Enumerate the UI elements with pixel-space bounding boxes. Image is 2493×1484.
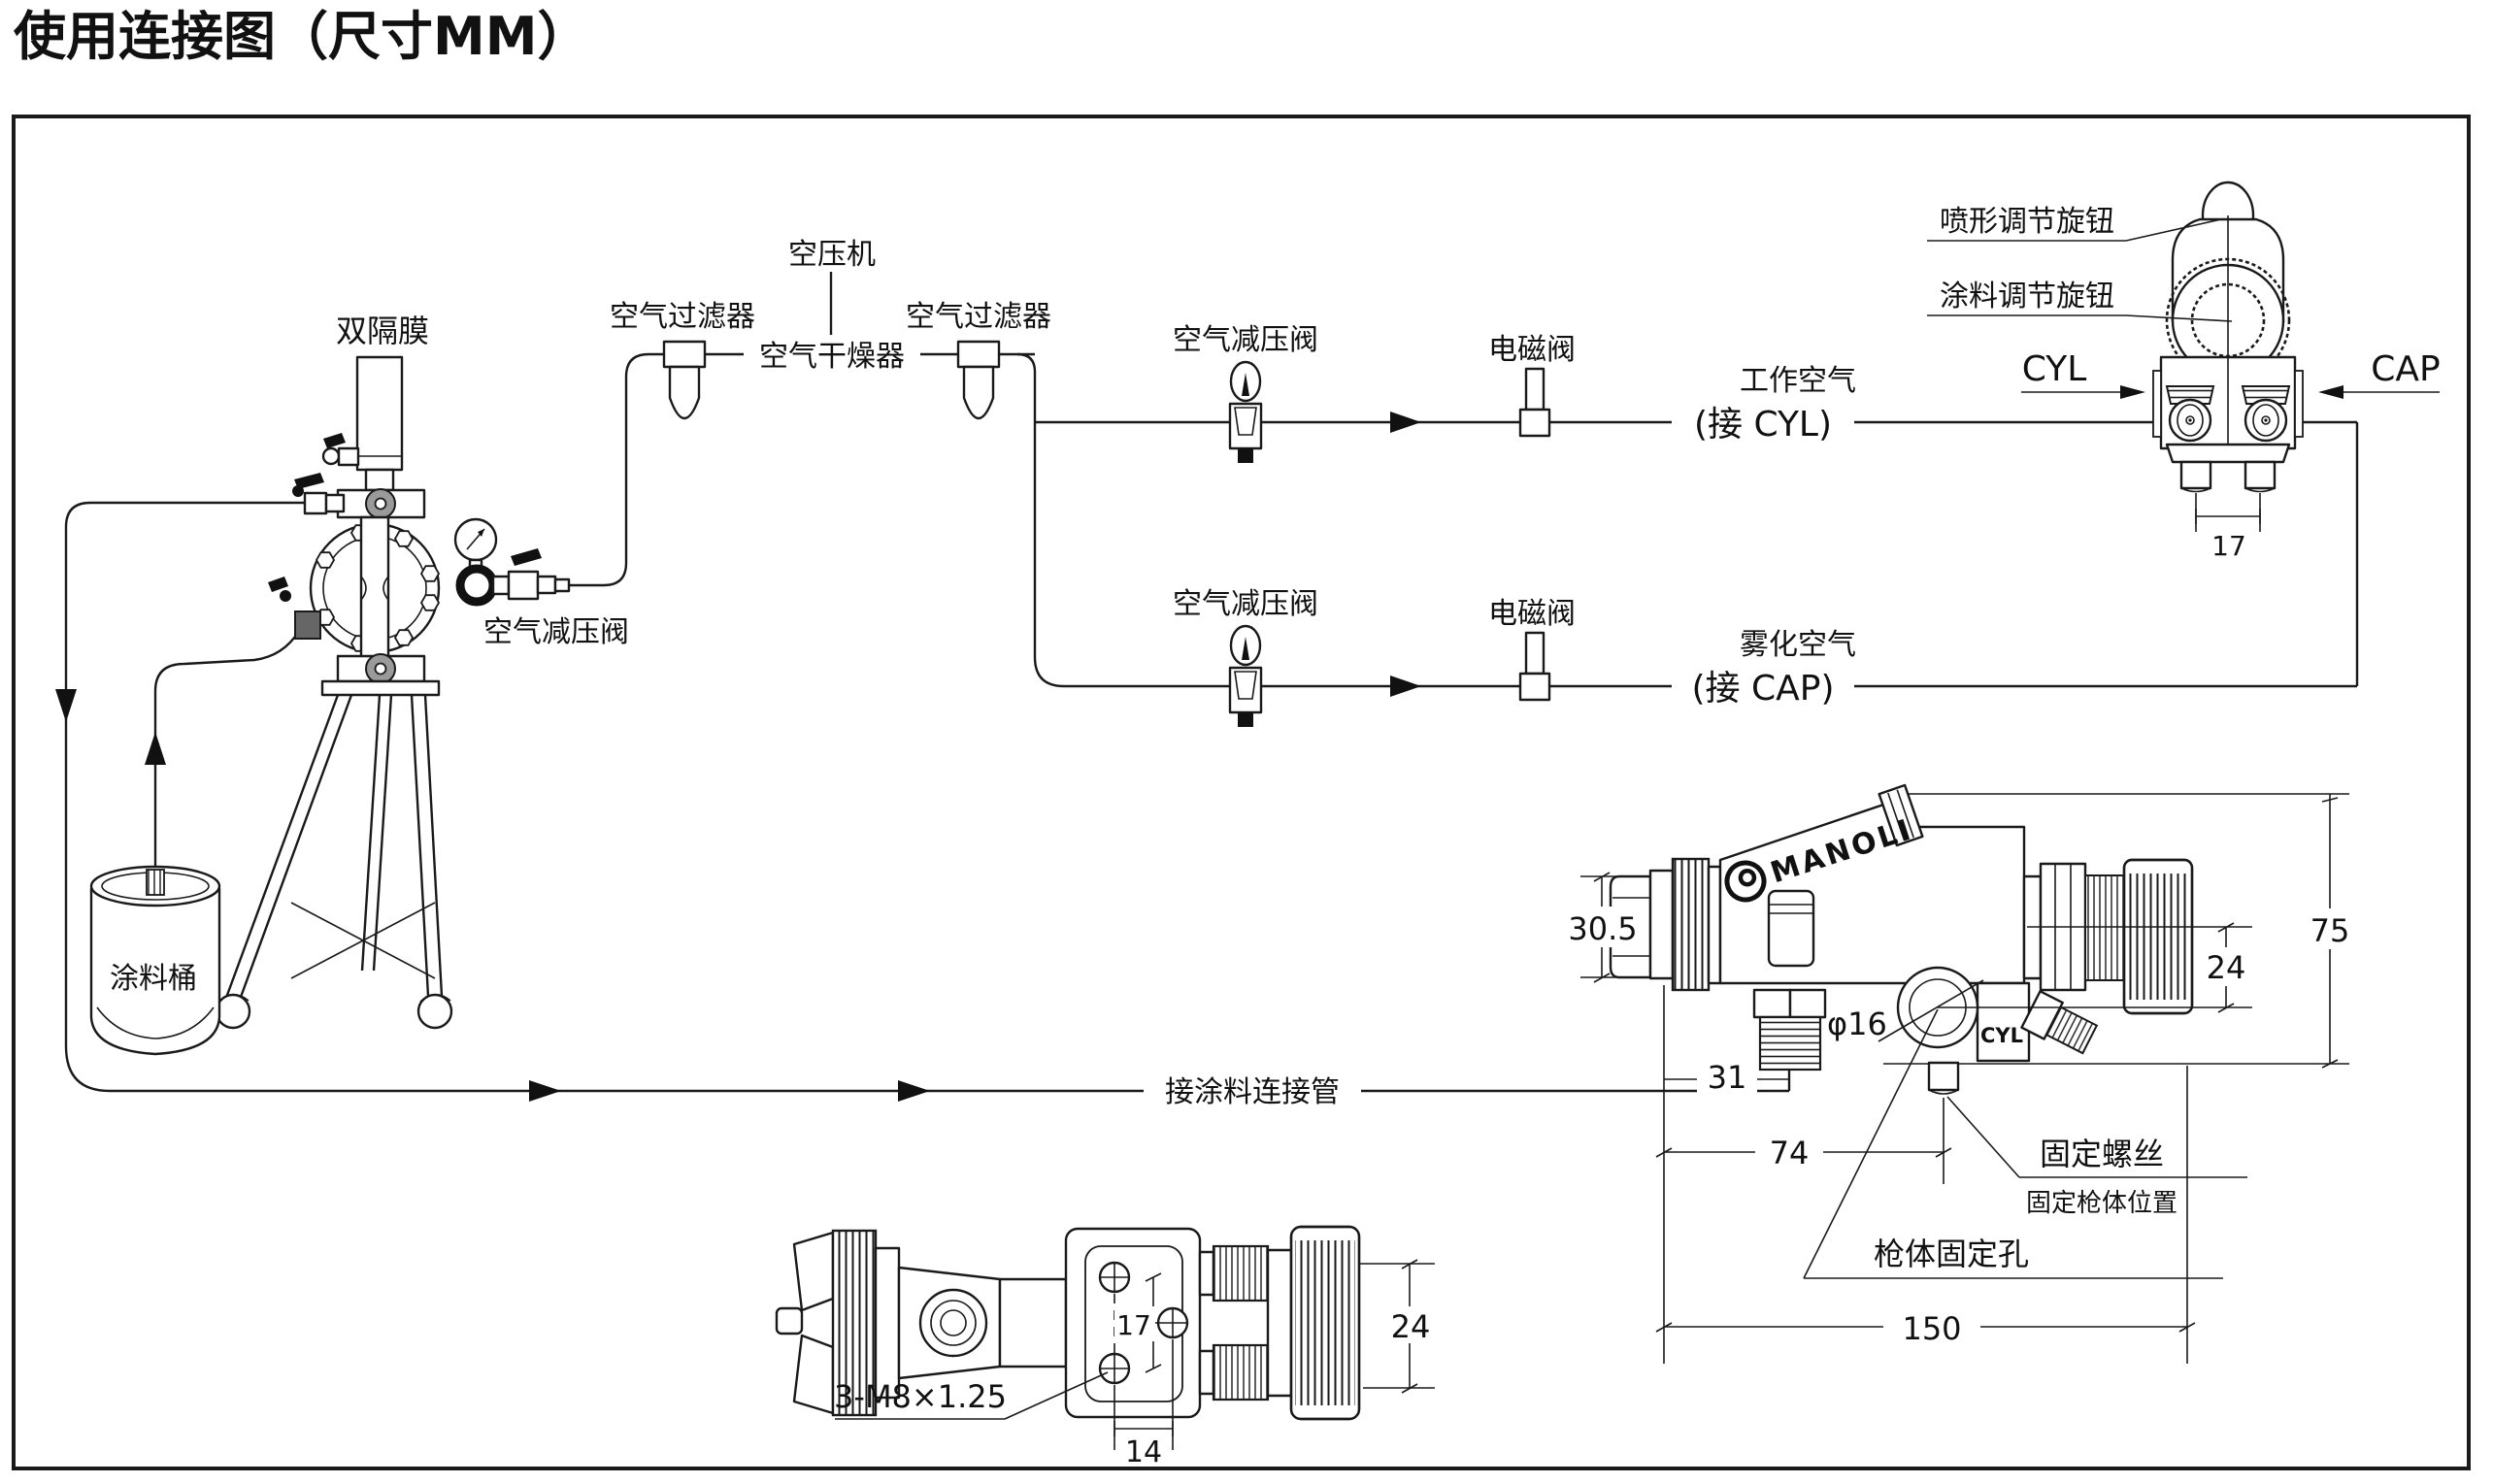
flow-arrow-paint-2 [898, 1080, 930, 1102]
regulator-label-2: 空气减压阀 [1173, 587, 1318, 621]
screw-note-label: 固定枪体位置 [2026, 1189, 2177, 1218]
hole-dim: 74 [1770, 1135, 1810, 1171]
flow-arrow-down [55, 689, 77, 722]
solenoid-stem-2 [1526, 633, 1544, 674]
work-air-connect: (接 CYL) [1694, 405, 1832, 445]
cap-dim: 30.5 [1568, 910, 1637, 947]
side-hole-dim: 14 [1125, 1435, 1162, 1469]
side-cyl-text: CYL [1980, 1024, 2023, 1047]
solenoid-body-1 [1520, 410, 1549, 436]
solenoid-stem-1 [1526, 369, 1544, 410]
work-air-label: 工作空气 [1740, 364, 1856, 398]
atomize-air-label: 雾化空气 [1740, 628, 1856, 662]
pump-regulator-label: 空气减压阀 [483, 615, 629, 649]
nipple-dim: 31 [1708, 1059, 1747, 1096]
regulator-label-1: 空气减压阀 [1173, 323, 1318, 357]
height-dim: 75 [2310, 912, 2350, 949]
bottom-knob-dim: 24 [1391, 1308, 1431, 1345]
thread-spec-label: 3-M8×1.25 [834, 1378, 1007, 1415]
air-filter-right-label: 空气过滤器 [906, 300, 1051, 334]
mount-hole-label: 枪体固定孔 [1874, 1236, 2029, 1272]
paint-bucket: 涂料桶 [91, 867, 219, 1054]
diagram-page: 使用连接图（尺寸MM） [0, 0, 2493, 1484]
solenoid-label-1: 电磁阀 [1488, 333, 1576, 367]
paint-nipple [1760, 1017, 1820, 1070]
pump-label: 双隔膜 [336, 313, 429, 349]
hole-dia-label: φ16 [1827, 1006, 1887, 1042]
page-title: 使用连接图（尺寸MM） [14, 6, 589, 67]
diaphragm-pump: 双隔膜 [216, 313, 629, 1028]
gun-bottom-view: 17 24 14 3-M8×1.25 [777, 1227, 1439, 1469]
cap-annotation: CAP [2371, 349, 2440, 389]
flow-arrow-paint-1 [529, 1080, 561, 1102]
flow-arrow-work [1390, 412, 1421, 433]
air-filter-right-symbol [958, 342, 999, 367]
cyl-side-port [2021, 991, 2099, 1057]
air-filter-left-symbol [664, 342, 705, 367]
paint-line-label: 接涂料连接管 [1165, 1075, 1340, 1109]
flow-arrow-atomize [1390, 676, 1421, 697]
pump-air-regulator [460, 569, 493, 602]
knob-dim: 24 [2207, 949, 2246, 986]
cyl-annotation: CYL [2022, 349, 2087, 389]
connection-diagram: 使用连接图（尺寸MM） [0, 0, 2493, 1484]
bottom-holes-dim: 17 [1116, 1309, 1151, 1341]
front-pins-dim: 17 [2211, 530, 2246, 562]
paint-knob-label: 涂料调节旋钮 [1940, 280, 2114, 313]
compressor-label: 空压机 [788, 238, 876, 272]
fixing-screw [1929, 1063, 1958, 1090]
air-dryer-label: 空气干燥器 [759, 340, 905, 374]
atomize-air-row: 空气减压阀 电磁阀 雾化空气 (接 CAP) [1173, 587, 1856, 727]
gun-front-view: 17 喷形调节旋钮 涂料调节旋钮 CYL CAP [1927, 182, 2441, 562]
air-filter-left-label: 空气过滤器 [610, 300, 755, 334]
retaining-ring [1673, 859, 1709, 990]
solenoid-body-2 [1520, 674, 1549, 700]
bucket-label: 涂料桶 [110, 962, 197, 996]
solenoid-label-2: 电磁阀 [1488, 597, 1576, 631]
flow-arrow-up [145, 732, 166, 765]
gun-side-view: MANOLI CYL 30 [1557, 785, 2361, 1364]
pattern-knob-label: 喷形调节旋钮 [1940, 205, 2114, 239]
screw-label: 固定螺丝 [2040, 1136, 2164, 1172]
work-air-row: 空气减压阀 电磁阀 工作空气 (接 CYL) [1173, 323, 1856, 463]
atomize-air-connect: (接 CAP) [1691, 669, 1834, 709]
total-dim: 150 [1902, 1310, 1961, 1347]
